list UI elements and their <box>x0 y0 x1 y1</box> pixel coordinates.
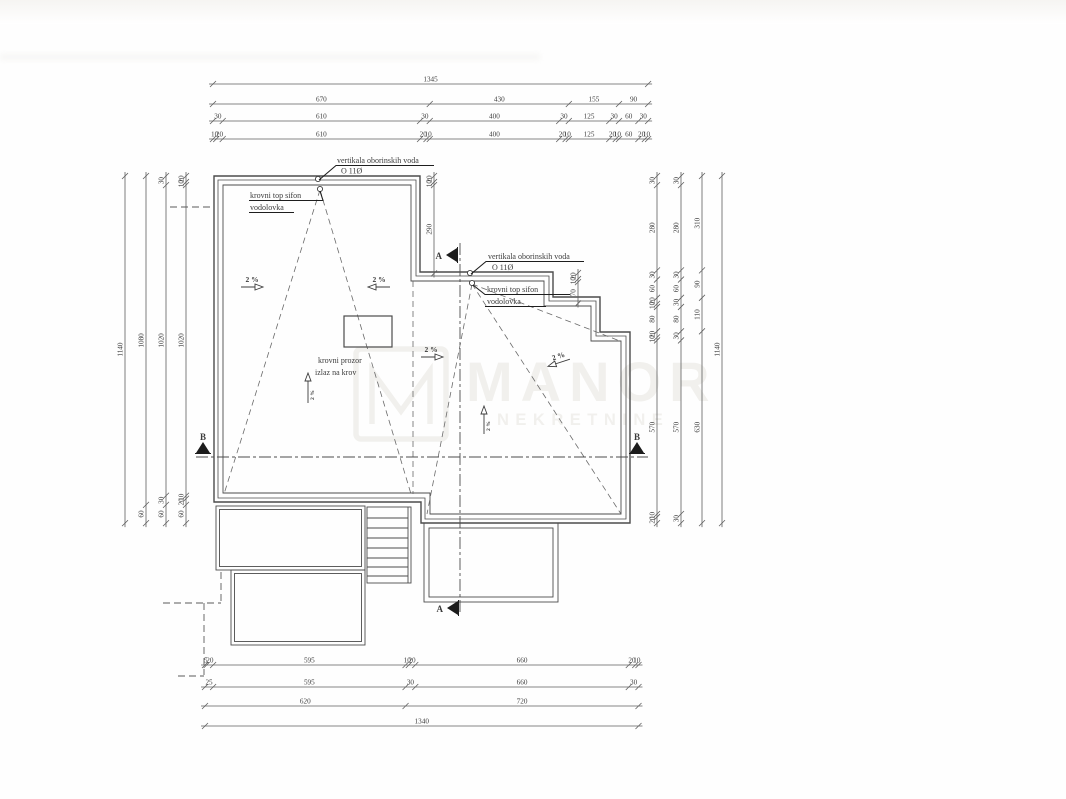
dim-chain-bottom-total: 1340 <box>201 718 642 730</box>
svg-text:630: 630 <box>694 421 702 432</box>
svg-text:10: 10 <box>649 301 657 309</box>
svg-text:2 %: 2 % <box>245 275 258 284</box>
svg-text:1080: 1080 <box>138 333 146 348</box>
svg-text:10: 10 <box>649 335 657 343</box>
dim-chain-step2-detail: 201070 <box>570 269 582 307</box>
dim-chain-right-total: 1140 <box>714 172 726 527</box>
svg-text:30: 30 <box>158 177 166 185</box>
note-drain-diameter-2: O 11Ø <box>492 263 513 272</box>
roof-plan-drawing: MANOR NEKRETNINE <box>0 0 1066 799</box>
svg-text:60: 60 <box>625 131 633 139</box>
svg-text:2 %: 2 % <box>310 390 316 400</box>
scan-artifact-band <box>0 0 1066 24</box>
svg-text:400: 400 <box>489 113 500 121</box>
svg-text:20: 20 <box>408 657 416 665</box>
svg-text:30: 30 <box>673 515 681 523</box>
svg-text:90: 90 <box>630 96 638 104</box>
section-marker-b-right: B <box>629 432 645 454</box>
svg-text:310: 310 <box>694 217 702 228</box>
svg-text:60: 60 <box>649 285 657 293</box>
svg-text:1020: 1020 <box>178 333 186 348</box>
svg-text:430: 430 <box>494 96 505 104</box>
svg-text:80: 80 <box>673 315 681 323</box>
section-marker-a-top: A <box>436 247 458 263</box>
watermark-brand: MANOR <box>466 350 718 413</box>
svg-text:30: 30 <box>649 177 657 185</box>
svg-text:30: 30 <box>407 679 415 687</box>
dim-chain-left-detail: 20101020102060 <box>178 172 190 527</box>
svg-text:1140: 1140 <box>117 342 125 357</box>
svg-text:20: 20 <box>178 498 186 506</box>
svg-text:595: 595 <box>304 657 315 665</box>
svg-text:610: 610 <box>316 131 327 139</box>
svg-text:1140: 1140 <box>714 342 722 357</box>
svg-text:400: 400 <box>489 131 500 139</box>
svg-text:595: 595 <box>304 679 315 687</box>
svg-text:1340: 1340 <box>415 718 430 726</box>
dim-chain-left-walls: 3010203060 <box>158 172 170 527</box>
note-gutter-1: vodolovka <box>250 203 284 212</box>
svg-text:670: 670 <box>316 96 327 104</box>
balcony-left-outer <box>231 570 365 645</box>
dim-chain-bottom-detail: 52059510206602010 <box>201 657 642 669</box>
svg-text:80: 80 <box>649 315 657 323</box>
svg-text:10: 10 <box>643 131 651 139</box>
svg-text:70: 70 <box>570 289 578 297</box>
roof-window-label-line2: izlaz na krov <box>315 368 356 377</box>
slope-arrow-right-1: 2 % <box>241 275 263 290</box>
svg-text:30: 30 <box>158 496 166 504</box>
balcony-lower-left <box>231 570 365 645</box>
balcony-middle <box>424 523 558 602</box>
section-marker-b-left: B <box>195 432 211 454</box>
svg-text:30: 30 <box>649 271 657 279</box>
svg-text:30: 30 <box>214 113 222 121</box>
svg-text:30: 30 <box>673 332 681 340</box>
svg-text:570: 570 <box>673 421 681 432</box>
svg-text:2 %: 2 % <box>372 275 385 284</box>
roof-window <box>344 316 392 347</box>
svg-text:10: 10 <box>570 277 578 285</box>
svg-text:25: 25 <box>205 679 213 687</box>
svg-text:2 %: 2 % <box>486 421 492 431</box>
drain-circle-2 <box>317 186 322 191</box>
svg-text:10: 10 <box>425 131 433 139</box>
note-vertical-drain-2: vertikala oborinskih voda <box>488 252 570 261</box>
roof-window-label-line1: krovni prozor <box>318 356 362 365</box>
svg-text:30: 30 <box>673 177 681 185</box>
svg-text:60: 60 <box>625 113 633 121</box>
roof-plan-page: MANOR NEKRETNINE <box>0 0 1066 799</box>
svg-text:60: 60 <box>158 510 166 518</box>
svg-text:10: 10 <box>614 131 622 139</box>
svg-text:60: 60 <box>138 510 146 518</box>
svg-text:2 %: 2 % <box>424 345 437 354</box>
section-lines <box>196 243 648 615</box>
dim-chain-bottom-walls: 255953066030 <box>201 679 642 691</box>
projection-dashed-lines <box>163 207 221 676</box>
svg-text:30: 30 <box>673 271 681 279</box>
annotations: vertikala oborinskih voda O 11Ø krovni t… <box>250 156 570 306</box>
svg-text:660: 660 <box>517 657 528 665</box>
svg-text:125: 125 <box>584 113 595 121</box>
watermark-tagline: NEKRETNINE <box>497 411 669 429</box>
svg-text:10: 10 <box>426 180 434 188</box>
svg-text:280: 280 <box>673 222 681 233</box>
terrace-inner <box>220 510 362 567</box>
dim-chain-top-groups: 67043015590 <box>209 96 652 108</box>
dim-chain-left-total: 1140 <box>117 172 129 527</box>
svg-text:570: 570 <box>649 421 657 432</box>
watermark-logo-m <box>372 371 430 424</box>
svg-text:155: 155 <box>589 96 600 104</box>
diagonal-left-plane-1 <box>224 190 320 494</box>
dim-chain-bottom-groups: 620720 <box>201 698 642 710</box>
section-b-label: B <box>200 432 206 442</box>
svg-text:60: 60 <box>673 285 681 293</box>
svg-text:10: 10 <box>633 657 641 665</box>
svg-text:90: 90 <box>694 280 702 288</box>
watermark: MANOR NEKRETNINE <box>356 349 718 439</box>
svg-text:720: 720 <box>517 698 528 706</box>
svg-text:610: 610 <box>316 113 327 121</box>
svg-text:10: 10 <box>178 180 186 188</box>
section-a-label: A <box>436 251 443 261</box>
svg-text:660: 660 <box>517 679 528 687</box>
svg-text:10: 10 <box>564 131 572 139</box>
leader-drain-top <box>319 166 434 181</box>
svg-text:1345: 1345 <box>423 76 438 84</box>
svg-text:620: 620 <box>300 698 311 706</box>
svg-text:60: 60 <box>178 510 186 518</box>
terrace-outer <box>216 506 365 570</box>
stair-treads <box>367 518 408 576</box>
slope-arrow-left-1: 2 % <box>368 275 390 290</box>
staircase <box>367 507 411 583</box>
svg-text:30: 30 <box>611 113 619 121</box>
svg-text:1020: 1020 <box>158 333 166 348</box>
svg-text:30: 30 <box>640 113 648 121</box>
section-b-label: B <box>634 432 640 442</box>
svg-text:30: 30 <box>630 679 638 687</box>
note-vertical-drain-1: vertikala oborinskih voda <box>337 156 419 165</box>
svg-text:20: 20 <box>206 657 214 665</box>
drain-circle-4 <box>469 280 474 285</box>
balcony-middle-outer <box>424 523 558 602</box>
dim-chain-top-total: 1345 <box>209 76 652 88</box>
section-a-label: A <box>437 604 444 614</box>
svg-text:280: 280 <box>649 222 657 233</box>
note-roof-siphon-2: krovni top sifon <box>487 285 538 294</box>
note-roof-siphon-1: krovni top sifon <box>250 191 301 200</box>
note-gutter-2: vodolovka <box>487 297 521 306</box>
svg-text:30: 30 <box>421 113 429 121</box>
svg-text:125: 125 <box>584 131 595 139</box>
balcony-left-inner <box>235 574 362 642</box>
svg-text:290: 290 <box>426 223 434 234</box>
balcony-middle-inner <box>429 528 553 597</box>
terrace-left <box>216 506 365 570</box>
dim-chain-top-walls: 306103040030125306030 <box>209 113 652 125</box>
dim-chain-step1-detail: 2010290 <box>426 172 438 277</box>
svg-text:20: 20 <box>216 131 224 139</box>
svg-text:110: 110 <box>694 309 702 320</box>
slope-arrow-up-1: 2 % <box>305 373 316 403</box>
scan-artifact-smudge <box>0 54 540 60</box>
note-drain-diameter-1: O 11Ø <box>341 167 362 176</box>
svg-text:20: 20 <box>649 516 657 524</box>
dim-chain-top-detail: 1020610201040020101252010602010 <box>209 131 652 143</box>
svg-text:30: 30 <box>673 298 681 306</box>
svg-text:30: 30 <box>560 113 568 121</box>
drain-points <box>315 176 474 285</box>
dim-chain-left-groups: 108060 <box>138 172 150 527</box>
